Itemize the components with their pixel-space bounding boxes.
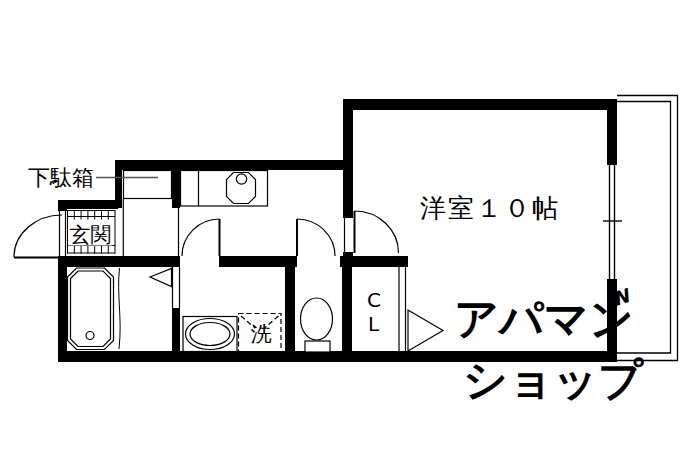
main-room-label: 洋室１０帖 (420, 193, 560, 223)
wall-main-top (343, 99, 617, 110)
wall-kitchen-top (116, 160, 343, 170)
wall-corridor-right (172, 160, 180, 208)
kitchen-faucet-icon (236, 174, 246, 184)
closet-label-c: C (367, 288, 381, 312)
floor-plan-svg: アパマン ショップ N (0, 0, 690, 460)
wall-main-right-lower (607, 279, 617, 362)
closet-label-l: L (368, 312, 380, 336)
wall-bath-right-lower (172, 308, 180, 352)
wall-main-left-upper (343, 99, 353, 218)
shoe-cabinet-label: 下駄箱 (28, 165, 94, 190)
wall-bath-left (58, 256, 67, 362)
toilet-bowl (301, 298, 333, 340)
wall-toilet-right (342, 256, 352, 352)
wall-bottom (58, 351, 617, 362)
wall-main-right-upper (607, 99, 617, 165)
toilet (301, 298, 333, 352)
washing-machine-label: 洗 (251, 322, 272, 346)
entrance-label: 玄関 (70, 223, 112, 247)
toilet-tank (305, 341, 330, 352)
floor-plan-page: アパマン ショップ N (0, 0, 690, 460)
wall-entrance-left-block (58, 200, 67, 211)
wall-toilet-left (285, 256, 295, 352)
wall-bath-top (58, 256, 180, 267)
kitchen-counter (181, 171, 268, 207)
